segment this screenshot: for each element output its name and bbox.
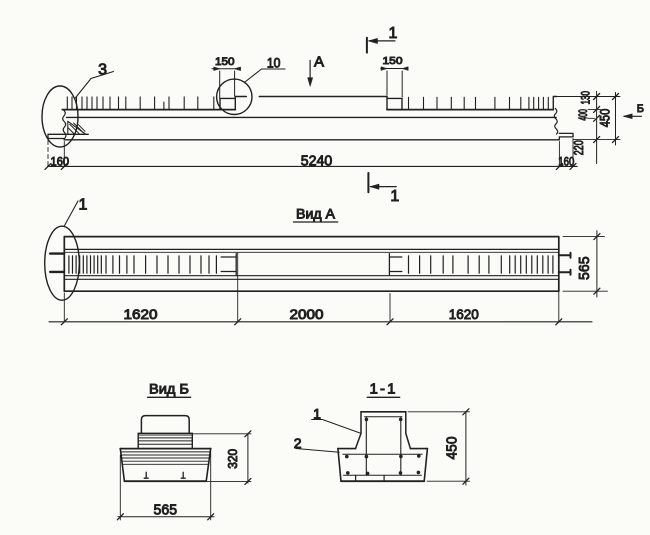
svg-text:1: 1 bbox=[78, 196, 87, 213]
svg-text:160: 160 bbox=[51, 156, 70, 168]
svg-text:150: 150 bbox=[215, 56, 235, 68]
svg-text:1: 1 bbox=[390, 188, 399, 205]
svg-text:320: 320 bbox=[226, 449, 240, 469]
svg-text:1620: 1620 bbox=[124, 307, 158, 322]
svg-text:150: 150 bbox=[383, 55, 403, 67]
svg-text:400: 400 bbox=[576, 109, 590, 121]
svg-text:1: 1 bbox=[389, 25, 398, 42]
svg-text:Б: Б bbox=[637, 103, 644, 115]
svg-text:1620: 1620 bbox=[449, 307, 479, 322]
svg-text:160: 160 bbox=[558, 154, 574, 168]
svg-text:10: 10 bbox=[267, 55, 281, 70]
svg-text:2000: 2000 bbox=[290, 307, 324, 322]
svg-text:5240: 5240 bbox=[301, 153, 333, 169]
svg-text:450: 450 bbox=[597, 109, 613, 128]
svg-text:220: 220 bbox=[571, 140, 586, 155]
svg-text:A: A bbox=[314, 53, 324, 70]
svg-text:Вид A: Вид A bbox=[296, 205, 336, 221]
svg-text:1 - 1: 1 - 1 bbox=[370, 380, 396, 397]
svg-text:565: 565 bbox=[154, 501, 178, 518]
svg-text:Вид Б: Вид Б bbox=[149, 381, 189, 397]
svg-text:565: 565 bbox=[576, 256, 593, 280]
svg-text:130: 130 bbox=[579, 91, 593, 105]
svg-text:450: 450 bbox=[443, 437, 460, 460]
svg-text:3: 3 bbox=[98, 62, 107, 79]
